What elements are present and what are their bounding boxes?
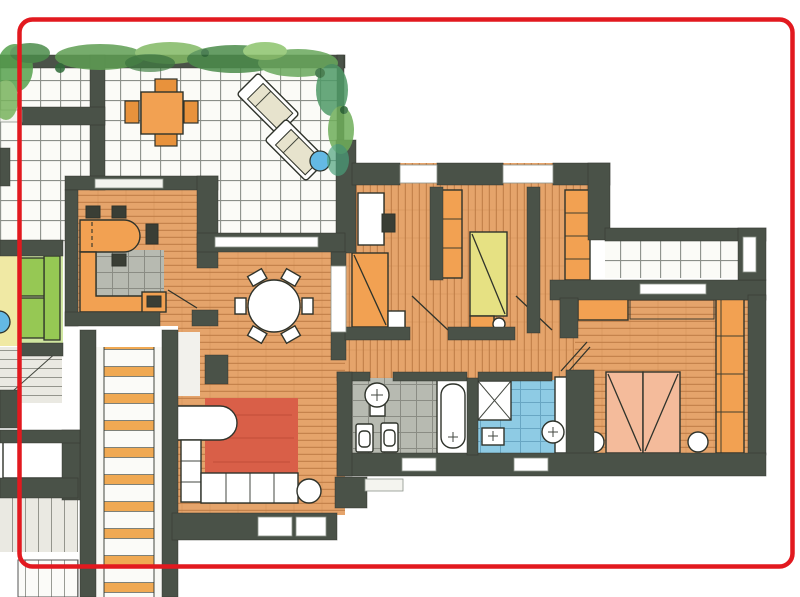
stair-run [96,347,162,597]
living-window-2 [296,517,326,536]
bar-stool-2 [112,206,126,218]
bath2-window [514,458,548,471]
floor-plan-screenshot: roof terrace balcony hallway living / di… [0,0,800,597]
partition-window [331,266,346,332]
terrace-table [141,92,183,134]
lounge-room: lounge [0,243,63,346]
sofa-back [181,440,201,502]
bedroom1-window [400,165,437,183]
dining-table [248,280,300,332]
bar-stool-3 [146,224,158,244]
green-sofa-seat-1 [20,258,44,296]
balcony-inset [743,237,756,272]
terrace-slider [215,237,318,247]
terrace-chair-left [125,101,139,123]
balcony: balcony [605,240,740,278]
bar-stool-1 [86,206,100,218]
balcony-tile-floor [605,240,740,278]
terrace-chair-top [155,79,177,93]
desk [358,193,384,245]
sofa-side-table [297,479,321,503]
bedroom2-window [503,165,553,183]
terrace-chair-right [184,101,198,123]
kitchen-sink [147,296,161,307]
nightstand1 [388,311,405,328]
green-sofa-seat-2 [20,298,44,338]
lower-steps [0,497,78,552]
stair-landing [3,441,63,478]
dressing-wardrobe [565,190,590,280]
stair-landing-threshold [178,332,200,396]
green-sofa-back [44,256,60,340]
kitchen-window [95,179,163,188]
dressing: dressing [565,190,590,280]
bathroom-2: shower bathroom [478,377,567,454]
master-dresser [578,299,628,320]
balcony-slider [640,284,706,294]
sofa-chaise [176,406,237,440]
exterior-step [365,479,403,491]
master-wardrobe [716,298,744,453]
terrace-side-table [310,151,330,171]
kitchen: kitchen [65,176,218,326]
living-window-1 [258,517,292,536]
bathroom-1: bathroom [350,378,469,455]
stair-rail-left [96,347,104,597]
desk-chair [382,214,395,232]
master-nightstand-right [688,432,708,452]
kitchen-peninsula [80,220,140,252]
bath1-window [402,458,436,471]
bar-stool-4 [112,254,126,266]
stair-rail-right [154,347,162,597]
floor-plan-drawing: roof terrace balcony hallway living / di… [0,0,800,597]
